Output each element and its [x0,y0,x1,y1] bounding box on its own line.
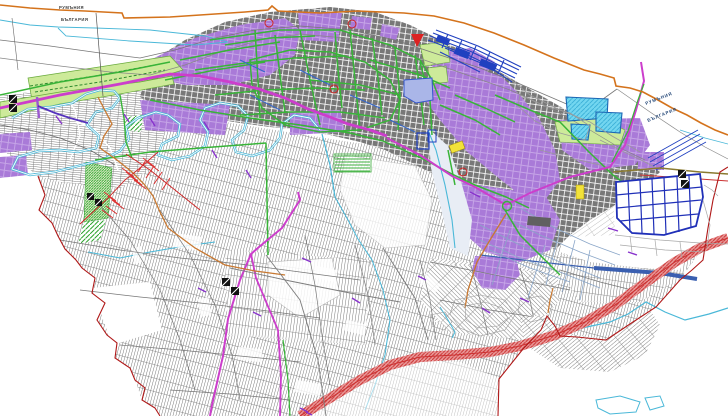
svg-text:РУМЪНИЯ: РУМЪНИЯ [59,5,84,10]
svg-text:БЪЛГАРИЯ: БЪЛГАРИЯ [61,17,88,22]
